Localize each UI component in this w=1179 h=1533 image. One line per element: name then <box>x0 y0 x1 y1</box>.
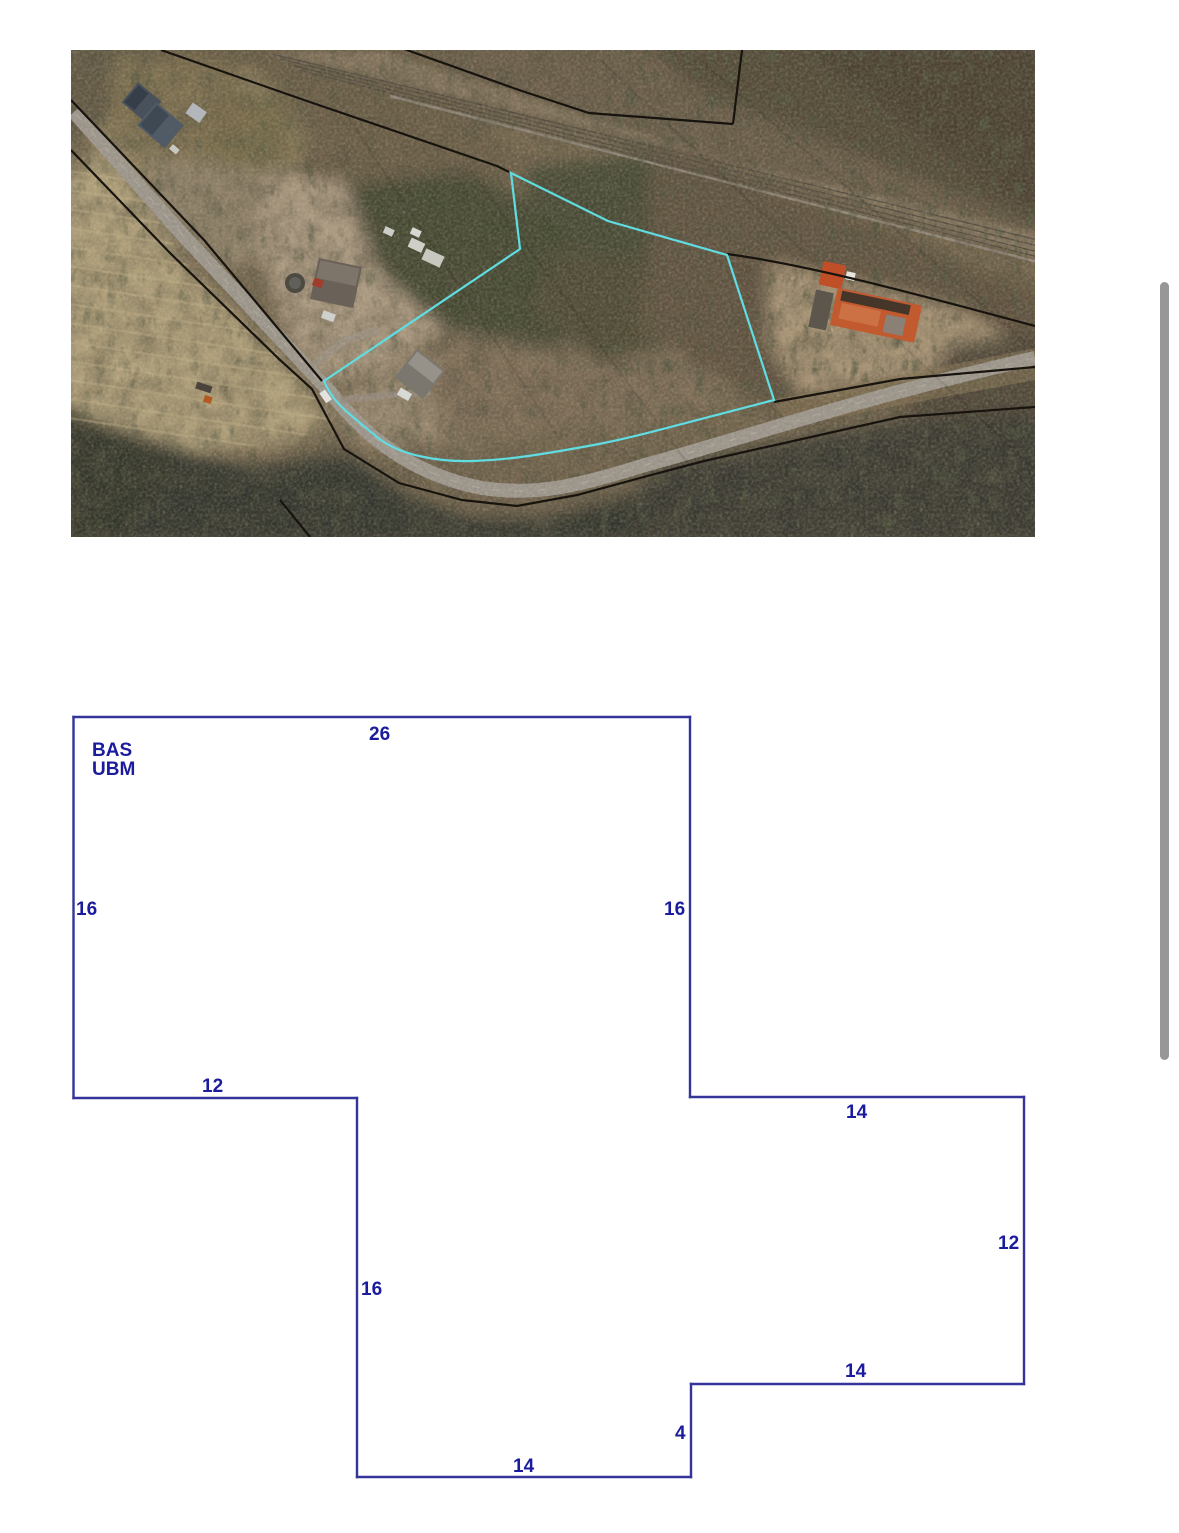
svg-text:14: 14 <box>845 1361 867 1382</box>
svg-text:26: 26 <box>369 724 390 745</box>
svg-text:16: 16 <box>361 1279 382 1300</box>
svg-text:16: 16 <box>76 899 97 920</box>
svg-text:UBM: UBM <box>92 759 135 780</box>
svg-text:12: 12 <box>998 1233 1019 1254</box>
svg-text:12: 12 <box>202 1076 223 1097</box>
svg-text:4: 4 <box>675 1423 686 1444</box>
svg-text:BAS: BAS <box>92 740 132 761</box>
svg-text:14: 14 <box>513 1456 535 1477</box>
svg-text:16: 16 <box>664 899 685 920</box>
svg-text:14: 14 <box>846 1102 868 1123</box>
